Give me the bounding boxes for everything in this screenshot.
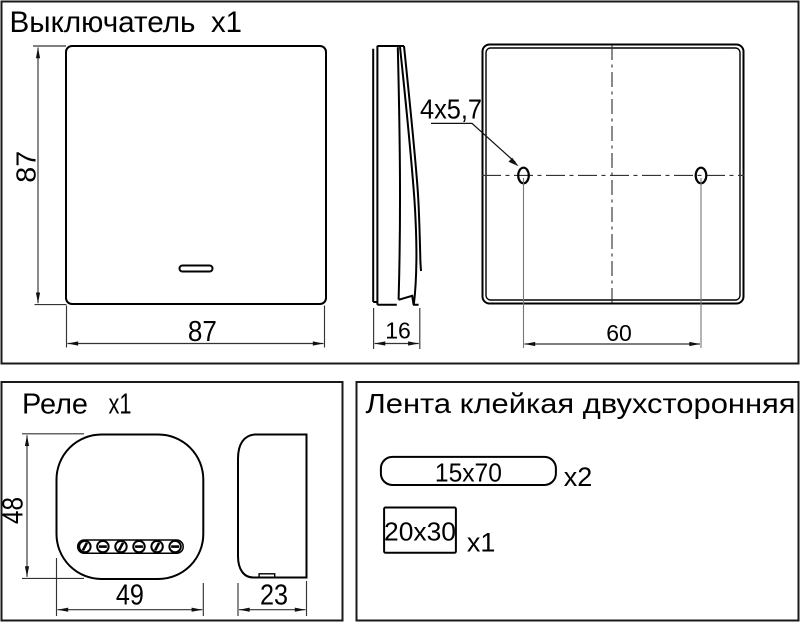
svg-text:60: 60 <box>606 320 632 346</box>
svg-text:20х30: 20х30 <box>384 516 456 546</box>
svg-text:Лента клейкая двухсторонняя: Лента клейкая двухсторонняя <box>366 388 796 419</box>
svg-text:Реле: Реле <box>22 389 88 421</box>
svg-text:х1: х1 <box>467 527 496 557</box>
svg-text:Выключатель: Выключатель <box>10 6 196 39</box>
svg-text:х1: х1 <box>109 389 132 421</box>
svg-text:23: 23 <box>260 580 288 612</box>
svg-text:49: 49 <box>116 580 144 612</box>
svg-text:48: 48 <box>0 497 30 524</box>
svg-text:х2: х2 <box>564 462 593 492</box>
svg-text:87: 87 <box>11 151 42 183</box>
svg-text:х1: х1 <box>211 6 242 39</box>
svg-text:15х70: 15х70 <box>435 457 502 487</box>
svg-text:87: 87 <box>188 316 217 348</box>
svg-text:4х5,7: 4х5,7 <box>420 94 482 125</box>
svg-text:16: 16 <box>385 317 411 343</box>
